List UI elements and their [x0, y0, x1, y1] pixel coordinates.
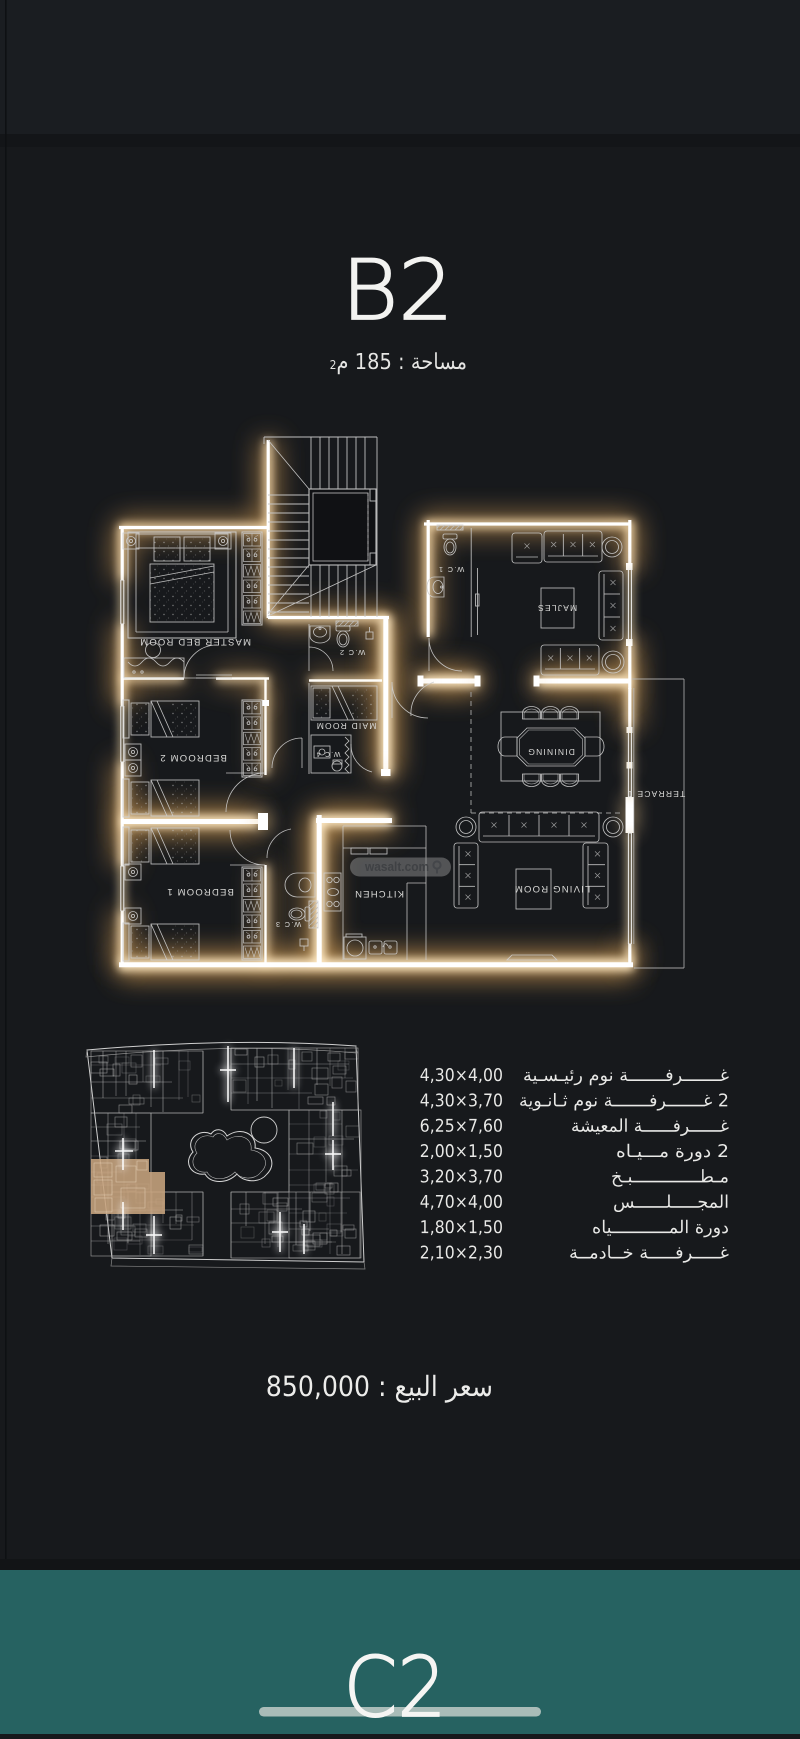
svg-text:W.C 1: W.C 1	[438, 565, 464, 574]
svg-text:W.C 4: W.C 4	[315, 750, 340, 757]
svg-text:MAJLES: MAJLES	[537, 603, 577, 613]
svg-text:W.C 3: W.C 3	[275, 920, 301, 929]
svg-text:TERRACE 1: TERRACE 1	[627, 789, 686, 799]
svg-text:BEDROOM 2: BEDROOM 2	[159, 752, 227, 763]
svg-text:DININING: DININING	[527, 747, 575, 757]
svg-text:BEDROOM 1: BEDROOM 1	[166, 886, 234, 897]
svg-text:LIVING ROOM: LIVING ROOM	[514, 883, 591, 894]
svg-text:MASTER BED ROOM: MASTER BED ROOM	[139, 636, 251, 647]
svg-text:wasalt.com: wasalt.com	[364, 860, 429, 874]
svg-text:KITCHEN: KITCHEN	[354, 888, 404, 899]
svg-text:W.C 2: W.C 2	[339, 648, 365, 657]
svg-text:MAID ROOM: MAID ROOM	[316, 721, 377, 731]
